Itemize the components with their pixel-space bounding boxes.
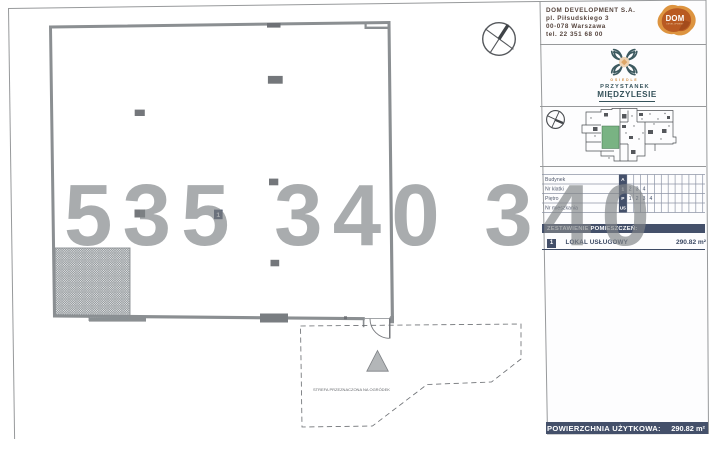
svg-text:DEVELOPMENT: DEVELOPMENT [666, 23, 684, 25]
svg-text:DOM: DOM [666, 14, 685, 23]
svg-text:STREFA PRZEZNACZONA NA OGRÓDEK: STREFA PRZEZNACZONA NA OGRÓDEK [313, 387, 390, 392]
